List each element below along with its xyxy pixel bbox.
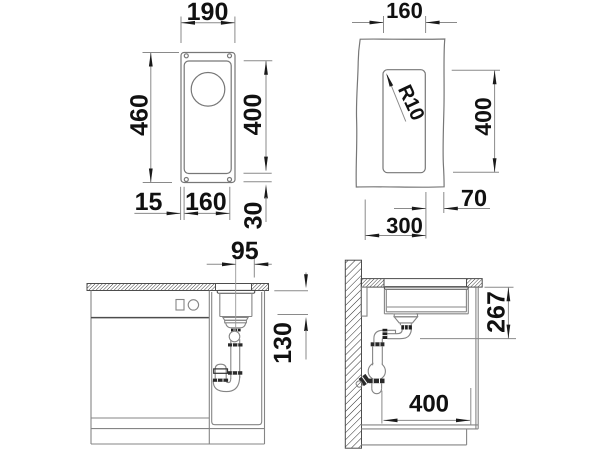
svg-text:460: 460 xyxy=(125,94,153,136)
svg-text:400: 400 xyxy=(239,94,267,136)
svg-text:130: 130 xyxy=(269,322,297,364)
svg-text:15: 15 xyxy=(135,188,163,216)
svg-text:30: 30 xyxy=(240,202,268,230)
svg-text:160: 160 xyxy=(185,188,227,216)
svg-text:190: 190 xyxy=(187,0,229,26)
svg-text:300: 300 xyxy=(386,213,423,238)
svg-text:70: 70 xyxy=(461,185,487,211)
svg-text:267: 267 xyxy=(482,291,510,333)
svg-text:400: 400 xyxy=(409,390,449,417)
svg-text:160: 160 xyxy=(386,0,423,23)
svg-text:95: 95 xyxy=(231,237,259,265)
svg-text:400: 400 xyxy=(470,97,496,135)
